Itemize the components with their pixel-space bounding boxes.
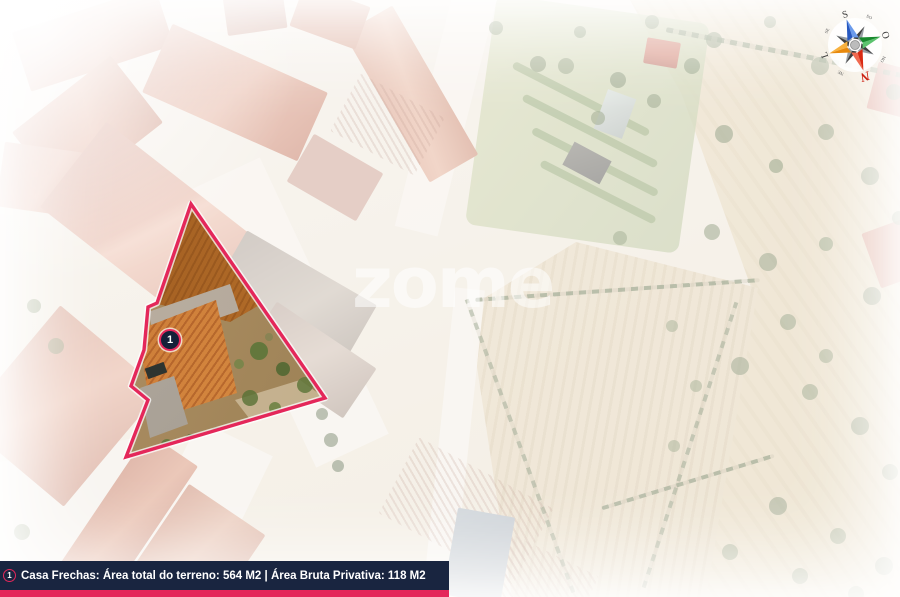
listing-aerial-view: 1 zome N S L O NE SE SO NO 1 <box>0 0 900 597</box>
compass-ne: NE <box>837 69 845 76</box>
name-separator: : <box>96 570 103 582</box>
info-bar: 1 Casa Frechas: Área total do terreno: 5… <box>0 561 449 590</box>
separator: | <box>261 570 271 582</box>
badge-number: 1 <box>7 571 11 580</box>
info-bar-badge: 1 <box>3 569 16 582</box>
info-bar-text: Casa Frechas: Área total do terreno: 564… <box>21 570 426 582</box>
compass-no: NO <box>879 55 887 64</box>
property-marker-1[interactable]: 1 <box>159 329 181 351</box>
area-private-value: 118 M2 <box>388 570 426 582</box>
area-private-label: Área Bruta Privativa: <box>271 570 388 582</box>
property-name: Casa Frechas <box>21 570 96 582</box>
marker-number: 1 <box>167 334 173 346</box>
watermark: zome <box>352 248 553 318</box>
compass-rose-icon: N S L O NE SE SO NO <box>818 8 892 82</box>
area-total-value: 564 M2 <box>223 570 261 582</box>
compass-so: SO <box>866 13 874 20</box>
compass-w: O <box>879 30 892 40</box>
compass-s: S <box>841 9 850 21</box>
area-total-label: Área total do terreno: <box>103 570 223 582</box>
compass-e: L <box>819 50 831 59</box>
compass-se: SE <box>824 27 831 34</box>
accent-stripe <box>0 590 449 597</box>
